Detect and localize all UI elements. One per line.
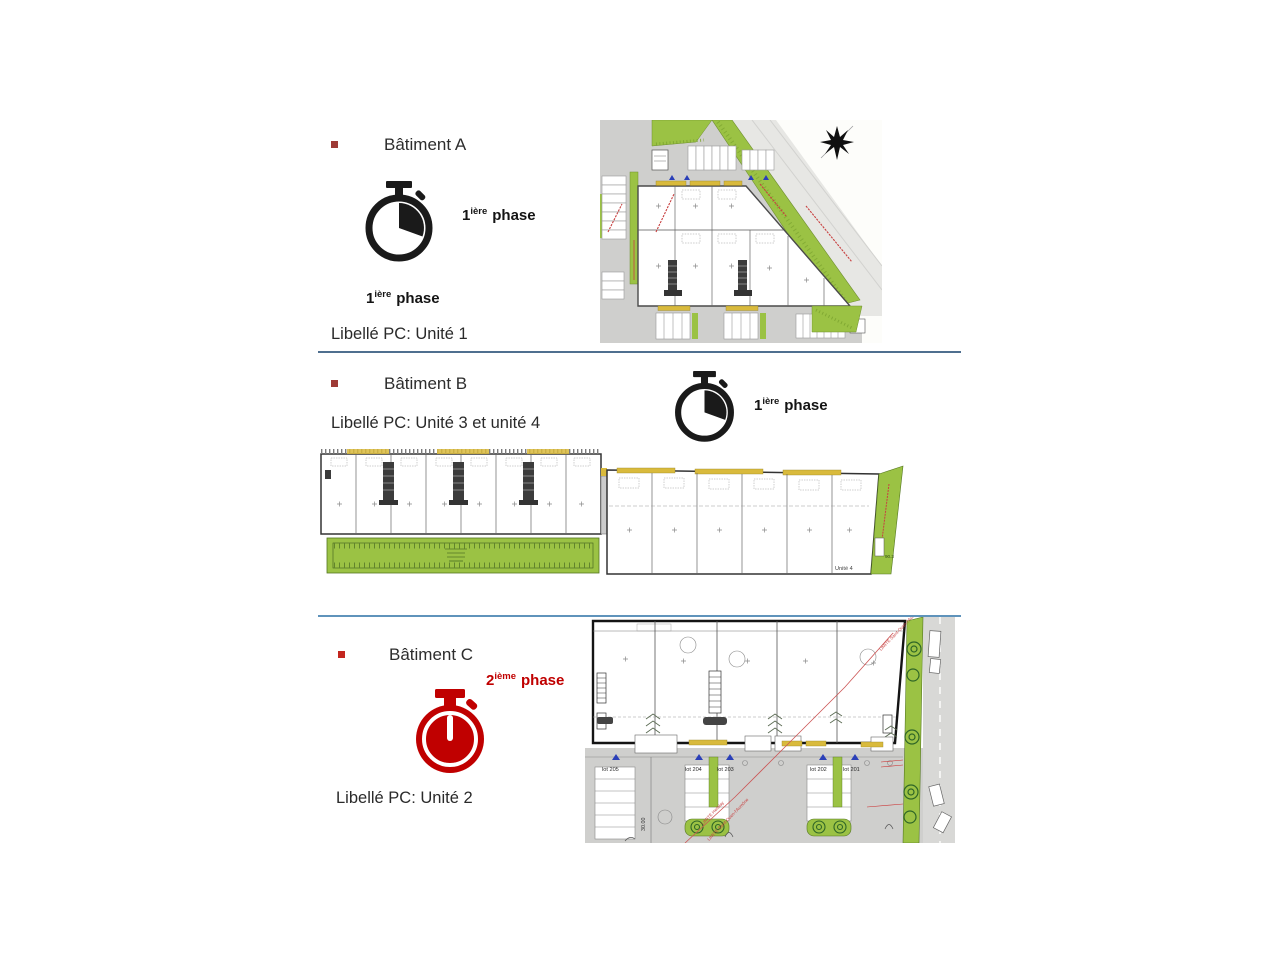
site-plan-batiment-a: [600, 120, 882, 343]
stopwatch-icon: [671, 371, 738, 444]
bullet-icon-c: [338, 651, 345, 658]
section-divider-1: [318, 351, 961, 353]
lot-label-205: lot 205: [602, 767, 619, 773]
unit-4-label: Unité 4: [835, 566, 853, 572]
stopwatch-icon: [363, 181, 435, 264]
stopwatch-icon-red: [414, 689, 486, 773]
floor-plan-batiment-b: Unité 4 90.3: [319, 448, 916, 578]
page-canvas: { "colors": { "phase_red": "#c00000", "s…: [0, 0, 1280, 960]
green-dim-label: 90.3: [885, 554, 894, 559]
phase-label-c: 2ièmephase: [486, 671, 564, 689]
lot-label-201: lot 201: [843, 767, 860, 773]
phase-label-b: 1ièrephase: [754, 396, 828, 414]
section-a-title: Bâtiment A: [384, 135, 466, 155]
dimension-label: 30.00: [641, 818, 647, 832]
phase-label-a-side: 1ièrephase: [462, 206, 536, 224]
bullet-icon-a: [331, 141, 338, 148]
phase-label-a-below: 1ièrephase: [366, 289, 440, 307]
libelle-pc-c: Libellé PC: Unité 2: [336, 789, 473, 808]
building-c-footprint: [593, 621, 905, 743]
libelle-pc-a: Libellé PC: Unité 1: [331, 325, 468, 344]
section-c-title: Bâtiment C: [389, 645, 473, 665]
floor-plan-batiment-c: lot 205 lot 204 lot 203 lot 202 lot 201 …: [585, 617, 955, 843]
lot-label-204: lot 204: [685, 767, 702, 773]
parking-stalls-left: [602, 176, 626, 299]
section-b-title: Bâtiment B: [384, 374, 467, 394]
lot-label-203: lot 203: [717, 767, 734, 773]
building-b-right: [607, 470, 879, 574]
lot-label-202: lot 202: [810, 767, 827, 773]
bullet-icon-b: [331, 380, 338, 387]
libelle-pc-b: Libellé PC: Unité 3 et unité 4: [331, 414, 540, 433]
